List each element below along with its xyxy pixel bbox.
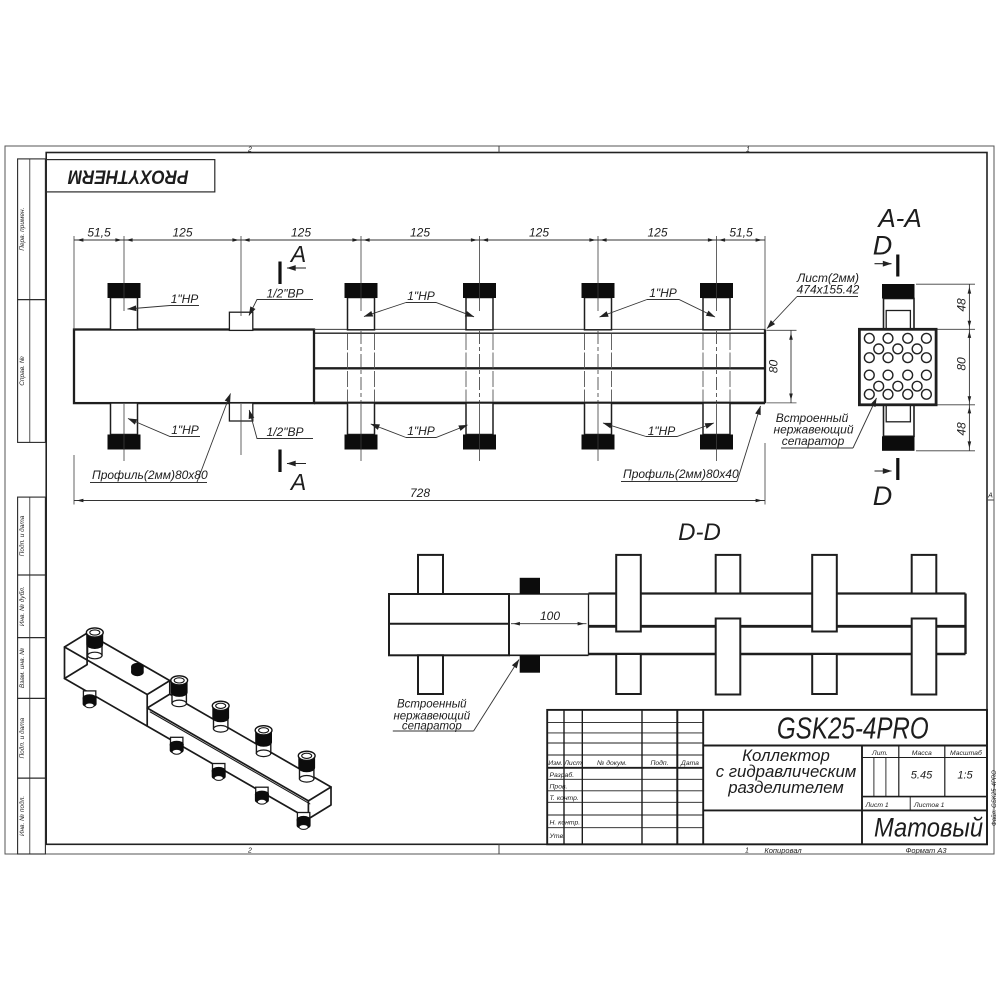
svg-text:474х155.42: 474х155.42 — [797, 283, 860, 297]
svg-text:Лит.: Лит. — [871, 750, 888, 757]
svg-text:Взам. инв. №: Взам. инв. № — [19, 648, 26, 688]
svg-text:A: A — [289, 469, 306, 495]
svg-text:Встроенный: Встроенный — [397, 699, 467, 711]
svg-text:Дата: Дата — [680, 760, 699, 767]
svg-text:Справ. №: Справ. № — [19, 356, 26, 386]
svg-text:D-D: D-D — [678, 519, 721, 546]
svg-text:Инв. № дубл.: Инв. № дубл. — [18, 586, 26, 626]
svg-text:80: 80 — [955, 357, 969, 371]
svg-text:Утв.: Утв. — [549, 833, 566, 840]
svg-text:1/2"ВР: 1/2"ВР — [267, 425, 304, 439]
svg-text:1"НР: 1"НР — [648, 424, 676, 438]
svg-text:1"НР: 1"НР — [171, 423, 199, 437]
svg-text:разделителем: разделителем — [727, 778, 844, 797]
svg-text:51,5: 51,5 — [729, 226, 753, 240]
svg-text:Инв. № подл.: Инв. № подл. — [18, 796, 26, 837]
svg-text:80: 80 — [767, 360, 781, 374]
svg-text:1"НР: 1"НР — [171, 292, 199, 306]
svg-text:125: 125 — [529, 226, 549, 240]
svg-text:сепаратор: сепаратор — [782, 434, 845, 448]
svg-text:Листов 1: Листов 1 — [913, 802, 945, 809]
svg-text:D: D — [873, 231, 893, 261]
svg-text:№ докум.: № докум. — [597, 759, 627, 767]
svg-text:Изм.: Изм. — [548, 760, 563, 767]
svg-text:Лист: Лист — [563, 760, 582, 767]
svg-text:Масса: Масса — [912, 750, 932, 757]
svg-text:1"НР: 1"НР — [407, 289, 435, 303]
svg-text:Перв. примен.: Перв. примен. — [19, 207, 26, 250]
svg-text:Разраб.: Разраб. — [550, 771, 575, 779]
svg-text:100: 100 — [540, 609, 560, 623]
svg-text:125: 125 — [172, 226, 192, 240]
svg-text:728: 728 — [410, 486, 430, 500]
svg-text:PROXYTHERM: PROXYTHERM — [67, 166, 188, 187]
svg-text:1"НР: 1"НР — [649, 286, 677, 300]
svg-text:Лист 1: Лист 1 — [865, 802, 889, 809]
svg-text:Подп. и дата: Подп. и дата — [18, 717, 26, 758]
svg-text:Н. контр.: Н. контр. — [550, 820, 581, 827]
svg-text:125: 125 — [647, 226, 667, 240]
svg-text:Подп.: Подп. — [650, 759, 668, 767]
svg-text:Профиль(2мм)80х80: Профиль(2мм)80х80 — [92, 468, 208, 482]
svg-text:5.45: 5.45 — [911, 770, 933, 782]
svg-text:Копировал: Копировал — [764, 846, 802, 855]
svg-text:GSK25-4PRO: GSK25-4PRO — [777, 710, 929, 745]
svg-text:1/2"ВР: 1/2"ВР — [267, 287, 304, 301]
svg-text:Профиль(2мм)80х40: Профиль(2мм)80х40 — [623, 467, 739, 481]
svg-text:Подп. и дата: Подп. и дата — [18, 515, 26, 556]
svg-text:Масштаб: Масштаб — [950, 749, 983, 757]
svg-text:Т. контр.: Т. контр. — [550, 795, 579, 802]
svg-text:A: A — [987, 493, 993, 500]
svg-text:Пров.: Пров. — [550, 784, 568, 791]
svg-text:1: 1 — [746, 147, 750, 154]
svg-text:48: 48 — [955, 422, 969, 436]
svg-text:1"НР: 1"НР — [407, 424, 435, 438]
svg-text:D: D — [873, 481, 893, 511]
svg-text:2: 2 — [247, 848, 252, 855]
svg-text:125: 125 — [410, 226, 430, 240]
svg-text:Формат А3: Формат А3 — [905, 846, 947, 855]
svg-text:1:5: 1:5 — [957, 770, 973, 782]
svg-text:125: 125 — [291, 226, 311, 240]
svg-text:Матовый: Матовый — [874, 813, 983, 843]
svg-text:A: A — [289, 241, 306, 267]
svg-text:Файл: GSK25-4PRO: Файл: GSK25-4PRO — [991, 770, 998, 826]
svg-text:48: 48 — [955, 298, 969, 312]
svg-text:A-A: A-A — [876, 203, 921, 233]
svg-text:51,5: 51,5 — [87, 226, 111, 240]
svg-text:1: 1 — [745, 848, 749, 855]
svg-text:2: 2 — [247, 147, 252, 154]
